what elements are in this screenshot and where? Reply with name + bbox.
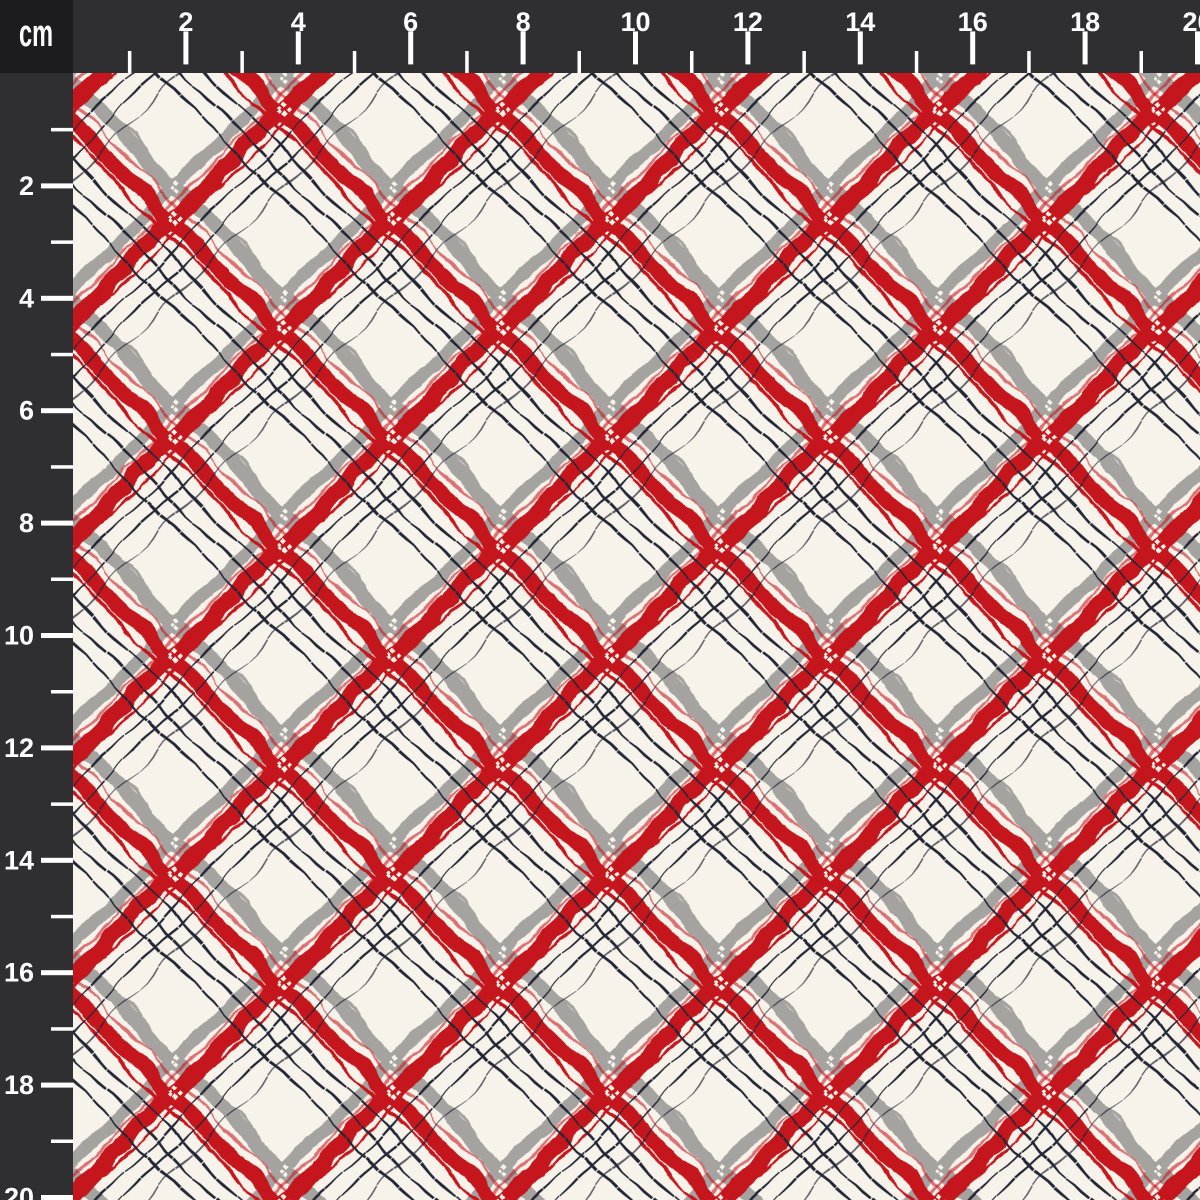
svg-text:12: 12	[733, 7, 763, 37]
svg-text:20: 20	[1182, 7, 1200, 37]
svg-text:6: 6	[19, 396, 34, 426]
svg-text:18: 18	[4, 1070, 34, 1100]
svg-text:8: 8	[19, 508, 34, 538]
svg-text:20: 20	[4, 1183, 34, 1200]
svg-text:4: 4	[19, 283, 34, 313]
svg-text:12: 12	[4, 733, 34, 763]
svg-text:16: 16	[958, 7, 988, 37]
svg-text:2: 2	[19, 171, 34, 201]
svg-text:10: 10	[4, 621, 34, 651]
svg-text:2: 2	[178, 7, 193, 37]
svg-text:10: 10	[620, 7, 650, 37]
svg-text:6: 6	[403, 7, 418, 37]
svg-text:18: 18	[1070, 7, 1100, 37]
svg-text:cm: cm	[19, 13, 53, 55]
svg-text:14: 14	[845, 7, 875, 37]
svg-text:4: 4	[291, 7, 306, 37]
svg-text:8: 8	[516, 7, 531, 37]
svg-text:14: 14	[4, 845, 34, 875]
svg-text:16: 16	[4, 958, 34, 988]
